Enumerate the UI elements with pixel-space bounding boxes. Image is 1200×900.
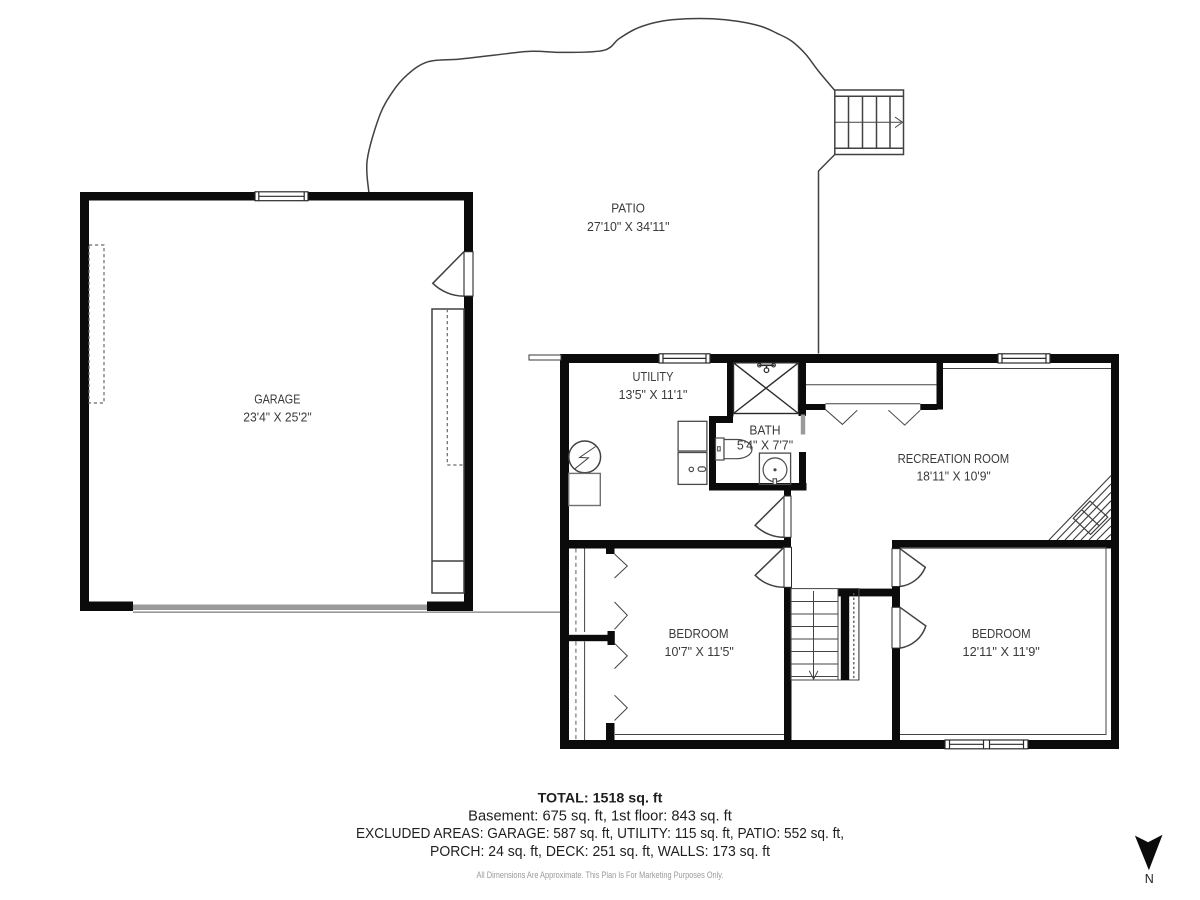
svg-text:RECREATION ROOM: RECREATION ROOM (898, 451, 1010, 466)
svg-text:Basement: 675 sq. ft, 1st floo: Basement: 675 sq. ft, 1st floor: 843 sq.… (468, 809, 732, 825)
svg-text:13'5" X 11'1": 13'5" X 11'1" (619, 387, 688, 402)
svg-text:BATH: BATH (749, 422, 780, 437)
svg-text:18'11" X 10'9": 18'11" X 10'9" (916, 469, 991, 484)
svg-text:BEDROOM: BEDROOM (669, 626, 729, 641)
svg-text:PORCH: 24 sq. ft, DECK: 251 sq: PORCH: 24 sq. ft, DECK: 251 sq. ft, WALL… (430, 844, 770, 860)
svg-text:EXCLUDED AREAS: GARAGE: 587 sq: EXCLUDED AREAS: GARAGE: 587 sq. ft, UTIL… (356, 826, 844, 842)
svg-text:10'7" X 11'5": 10'7" X 11'5" (665, 644, 735, 659)
svg-text:All Dimensions Are Approximate: All Dimensions Are Approximate. This Pla… (477, 870, 724, 880)
svg-text:GARAGE: GARAGE (254, 391, 300, 406)
svg-text:UTILITY: UTILITY (633, 369, 674, 384)
svg-text:PATIO: PATIO (611, 201, 645, 216)
svg-text:23'4" X 25'2": 23'4" X 25'2" (243, 410, 312, 425)
svg-text:N: N (1145, 872, 1154, 886)
svg-text:27'10" X 34'11": 27'10" X 34'11" (587, 219, 670, 234)
svg-text:BEDROOM: BEDROOM (972, 626, 1031, 641)
svg-text:5'4" X 7'7": 5'4" X 7'7" (737, 437, 794, 452)
svg-text:12'11" X 11'9": 12'11" X 11'9" (963, 644, 1041, 659)
svg-text:TOTAL: 1518 sq. ft: TOTAL: 1518 sq. ft (538, 791, 663, 806)
